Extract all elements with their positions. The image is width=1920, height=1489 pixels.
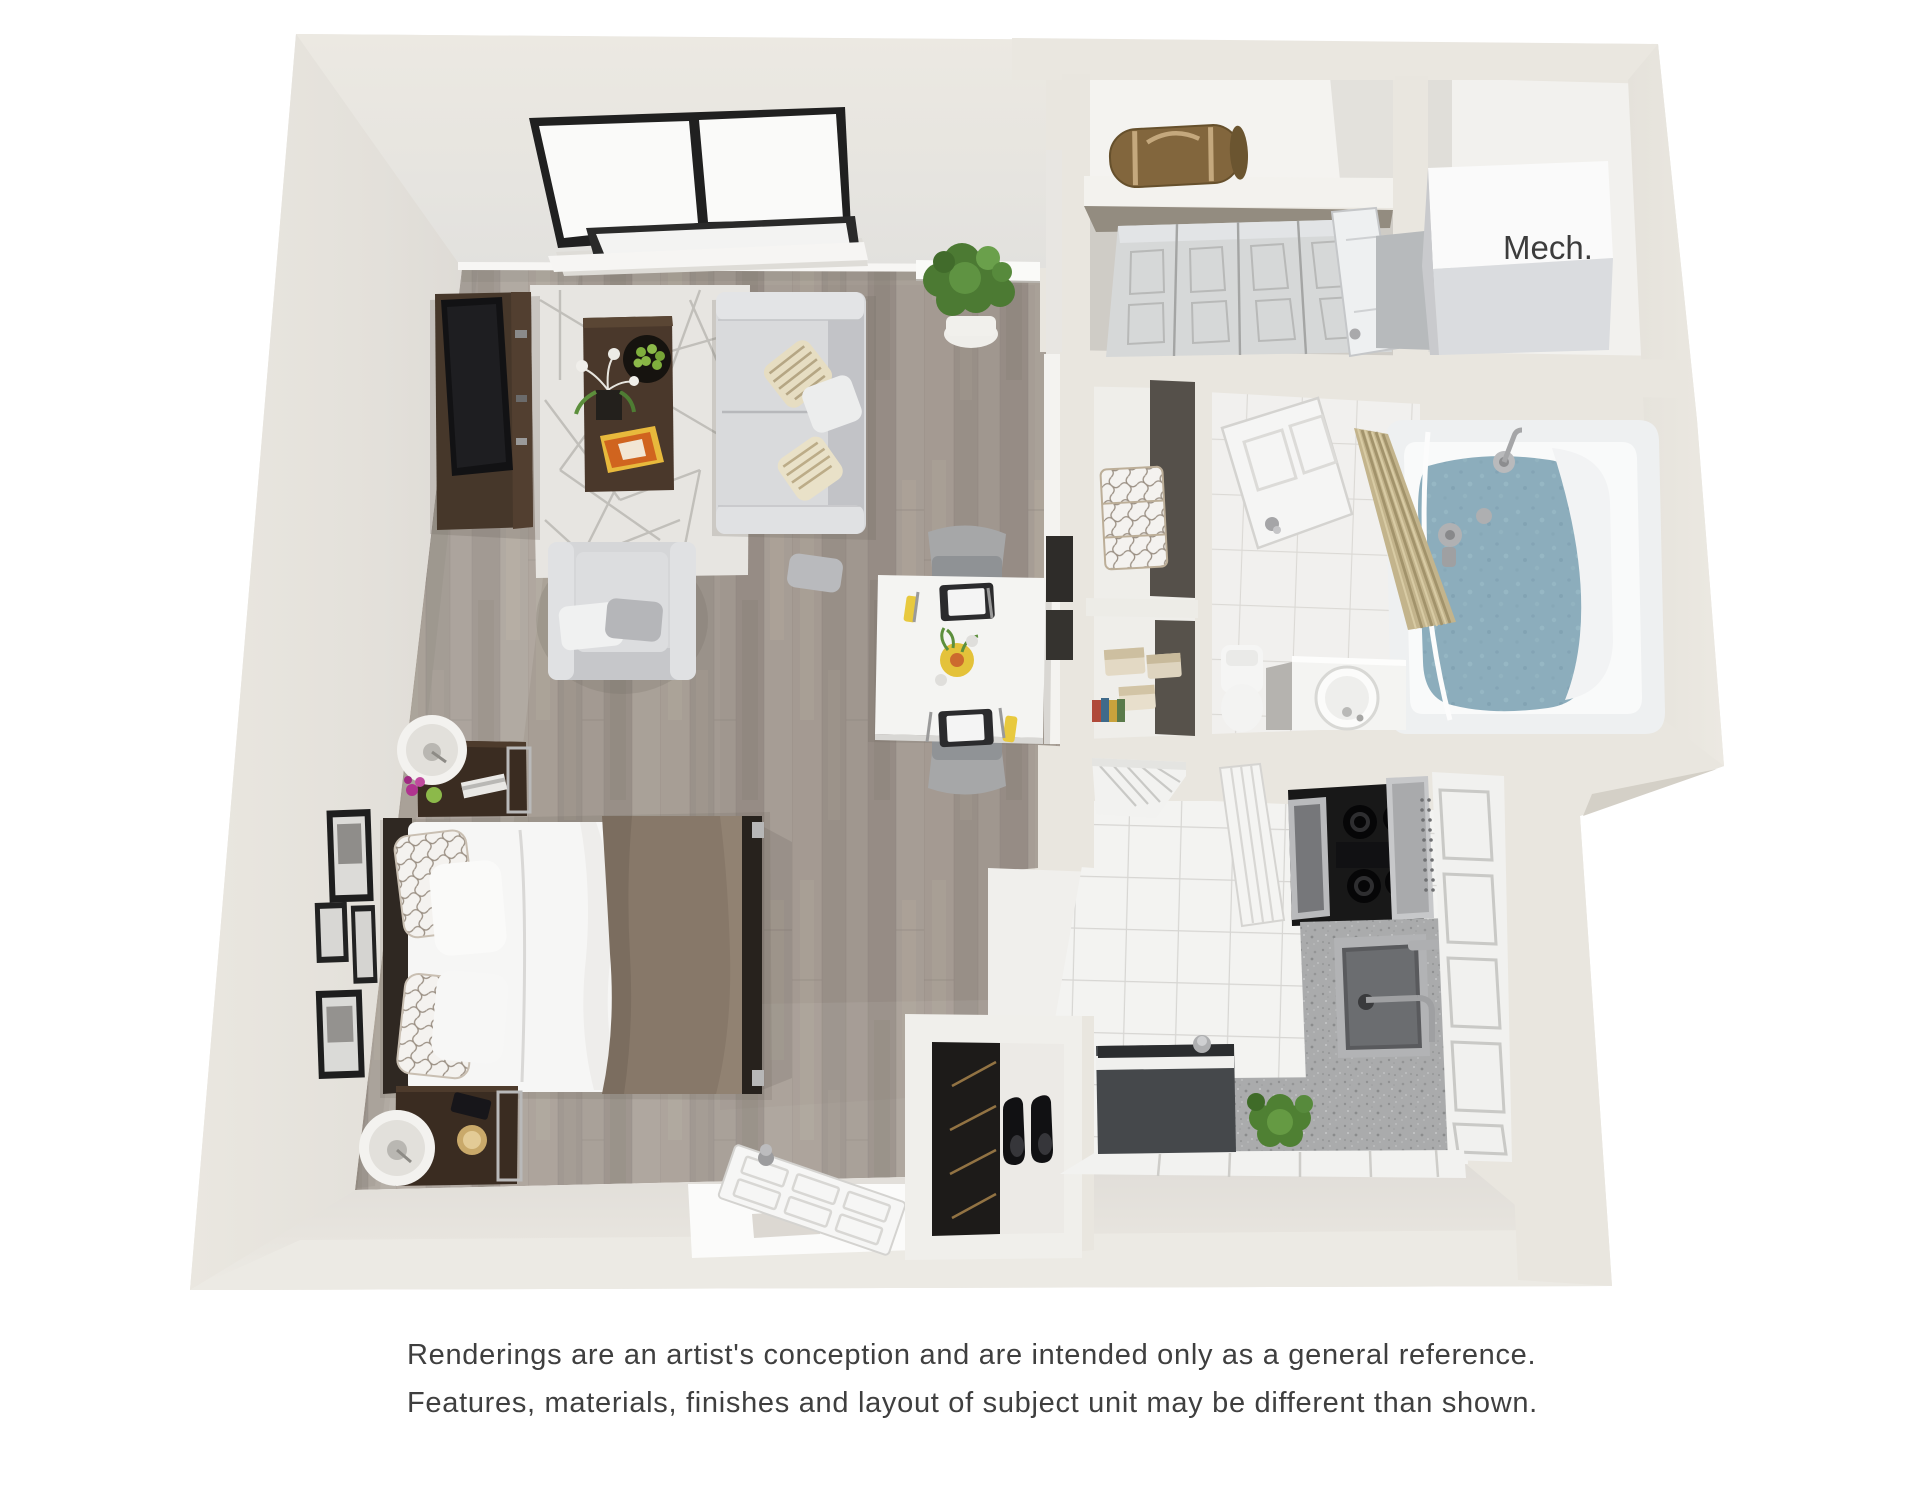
svg-text:Features, materials, finishes: Features, materials, finishes and layout… [407, 1387, 1538, 1419]
svg-text:Mech.: Mech. [1503, 229, 1593, 266]
svg-text:Renderings are an artist's con: Renderings are an artist's conception an… [407, 1339, 1536, 1371]
